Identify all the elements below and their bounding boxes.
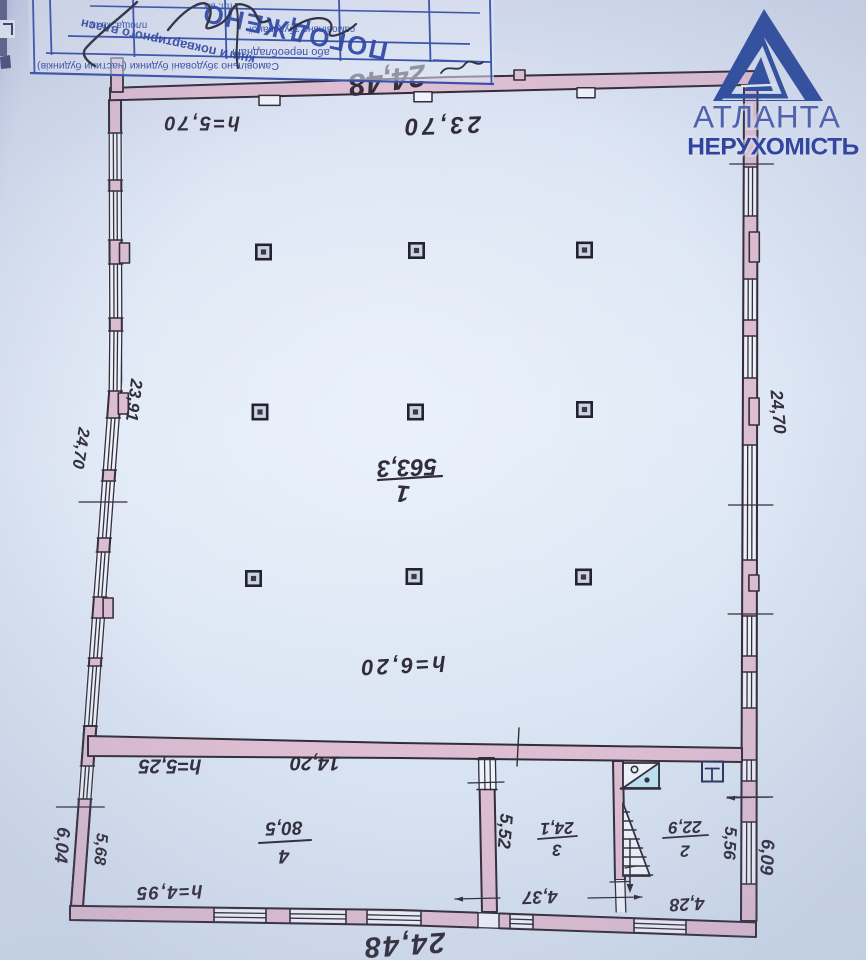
svg-text:1: 1	[395, 479, 411, 507]
svg-text:4: 4	[278, 845, 290, 866]
svg-text:НЕРУХОМІСТЬ: НЕРУХОМІСТЬ	[687, 133, 858, 160]
svg-text:h=4,95: h=4,95	[135, 881, 203, 904]
svg-text:4,37: 4,37	[521, 887, 559, 908]
svg-text:80,5: 80,5	[265, 816, 303, 838]
svg-text:2: 2	[680, 842, 691, 861]
svg-text:24,70: 24,70	[766, 388, 790, 435]
svg-text:АТЛАНТА: АТЛАНТА	[693, 98, 841, 134]
svg-text:24,48: 24,48	[362, 925, 448, 960]
svg-text:6,09: 6,09	[756, 839, 779, 877]
svg-text:h=5,70: h=5,70	[162, 112, 240, 134]
svg-text:24,1: 24,1	[540, 818, 575, 838]
svg-text:h=6,20: h=6,20	[358, 651, 446, 681]
svg-text:14,20: 14,20	[290, 752, 340, 774]
svg-text:5,52: 5,52	[494, 813, 517, 850]
svg-text:23,70: 23,70	[401, 110, 483, 140]
svg-text:3: 3	[552, 841, 562, 860]
svg-text:6,04: 6,04	[51, 826, 75, 864]
svg-text:5,56: 5,56	[720, 826, 741, 861]
svg-text:4,28: 4,28	[669, 893, 706, 915]
svg-text:22,9: 22,9	[668, 817, 703, 837]
svg-text:23,91: 23,91	[122, 377, 146, 423]
svg-text:24,70: 24,70	[68, 425, 93, 470]
svg-text:h=5,25: h=5,25	[138, 755, 202, 777]
svg-text:5,68: 5,68	[90, 832, 111, 866]
